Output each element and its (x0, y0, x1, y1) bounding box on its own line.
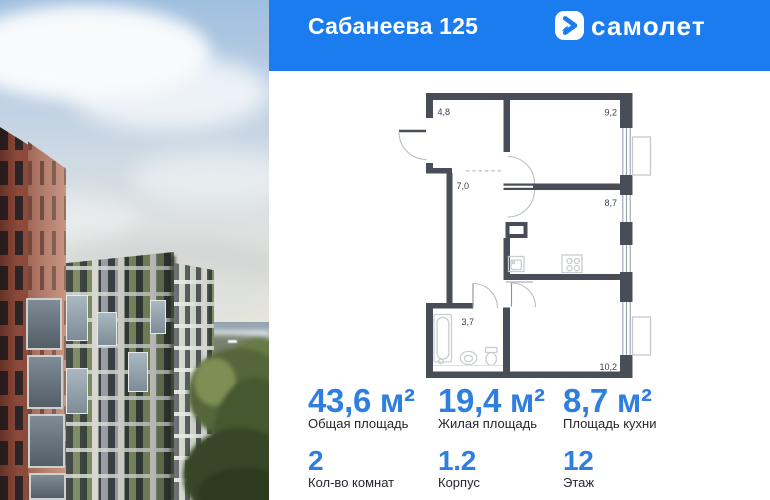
stat-floor-label: Этаж (563, 476, 594, 490)
floor-plan: 4,8 9,2 7,0 8,7 3,7 10,2 (390, 85, 660, 390)
stat-korpus-label: Корпус (438, 476, 480, 490)
stat-rooms-value: 2 (308, 447, 323, 475)
door-arcs (399, 131, 536, 308)
room-area-corridor: 7,0 (457, 181, 470, 191)
stat-kitchen-area-value: 8,7 м² (563, 384, 652, 417)
photo-balcony (128, 352, 148, 392)
floor-plan-walls (426, 93, 633, 378)
stat-total-area-value: 43,6 м² (308, 384, 415, 417)
samolet-logo-icon (555, 11, 584, 40)
photo-balcony (28, 414, 65, 468)
page-title: Сабанеева 125 (308, 13, 478, 40)
photo-balcony (29, 473, 66, 500)
stat-korpus-value: 1.2 (438, 447, 476, 475)
stat-living-area-value: 19,4 м² (438, 384, 545, 417)
building-photo (0, 0, 269, 500)
brand-logotype: самолет (591, 11, 706, 42)
photo-cloud (70, 55, 269, 130)
stat-living-area-label: Жилая площадь (438, 417, 537, 431)
room-area-bedroom: 9,2 (604, 107, 617, 117)
toilet-icon (486, 348, 498, 353)
photo-balcony (66, 295, 88, 341)
stat-total-area-label: Общая площадь (308, 417, 408, 431)
room-area-kitchen: 8,7 (604, 198, 617, 208)
stat-floor-value: 12 (563, 447, 594, 475)
photo-balcony (26, 298, 62, 350)
room-area-bathroom: 3,7 (462, 317, 475, 327)
photo-balcony (150, 300, 166, 334)
photo-ship (228, 340, 237, 343)
washbasin-icon (460, 351, 477, 364)
balcony-outline (633, 137, 651, 355)
photo-balcony (27, 355, 63, 409)
room-area-living: 10,2 (599, 362, 617, 372)
photo-balcony (97, 312, 117, 346)
shaft-box (508, 224, 526, 236)
listing-card[interactable]: Сабанеева 125 самолет (0, 0, 770, 500)
room-area-hallway: 4,8 (438, 107, 451, 117)
stat-kitchen-area-label: Площадь кухни (563, 417, 656, 431)
stat-rooms-label: Кол-во комнат (308, 476, 394, 490)
photo-balcony (66, 368, 88, 414)
